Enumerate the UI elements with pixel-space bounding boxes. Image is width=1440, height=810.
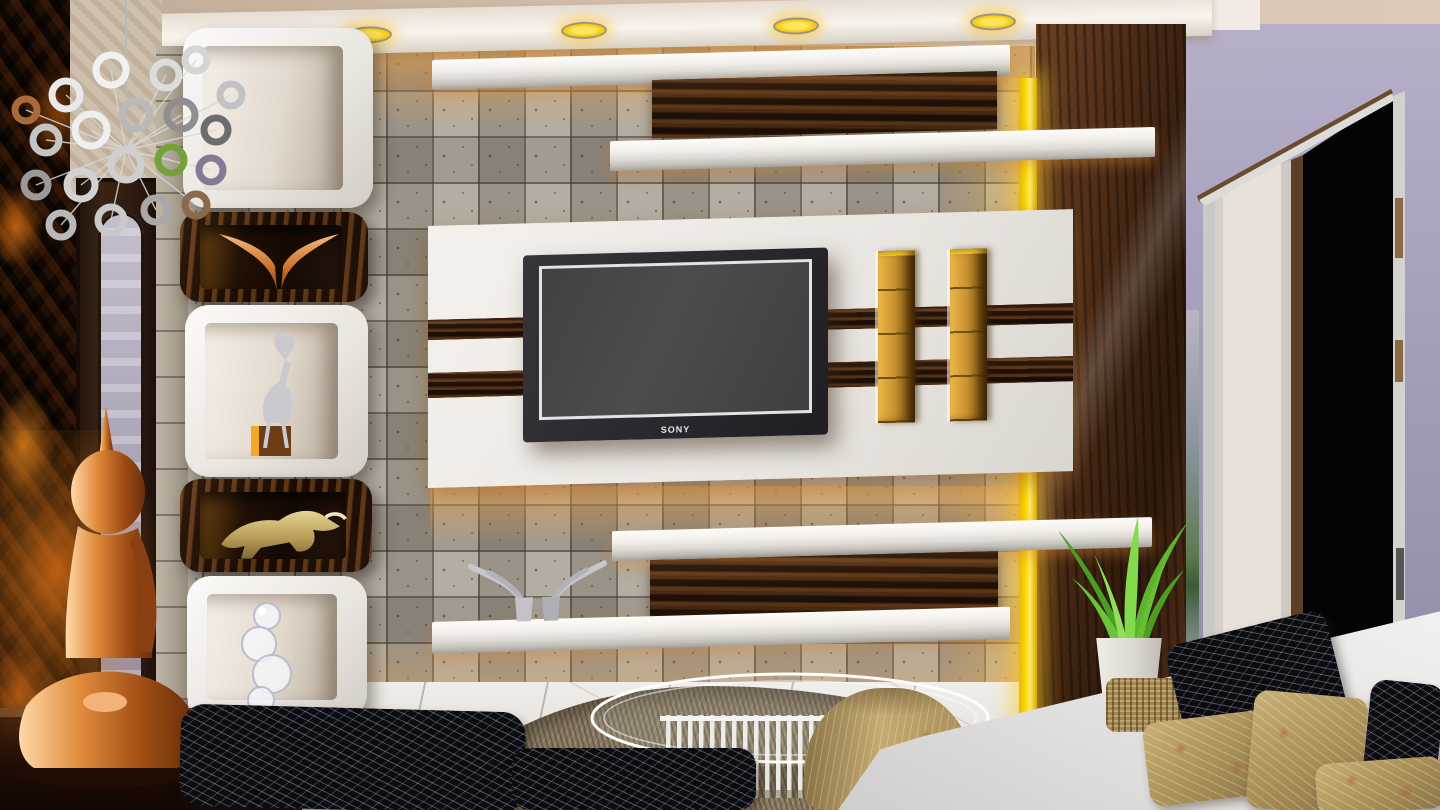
sputnik-chandelier: [6, 0, 250, 254]
antler-sculpture: [455, 557, 620, 623]
living-room-render: SONY: [0, 0, 1440, 810]
tv: SONY: [523, 248, 828, 443]
floor-pillow-black-left: [179, 704, 527, 810]
potted-plant: [1042, 492, 1207, 660]
crystal-figurine: [212, 596, 322, 714]
tv-screen: [539, 259, 812, 420]
antelope-figurine: [225, 330, 320, 460]
ceiling-spotlight: [970, 13, 1016, 31]
gold-bull-figurine: [202, 492, 352, 564]
gold-niche-1: [878, 250, 915, 423]
floor-pillow-black-center: [512, 748, 756, 810]
gold-niche-2: [950, 248, 987, 421]
ceiling-spotlight: [773, 17, 819, 35]
ceiling-spotlight: [561, 21, 607, 39]
wood-accent-band-top: [652, 71, 997, 138]
sofa-pillow-tan-3: [1314, 756, 1440, 810]
